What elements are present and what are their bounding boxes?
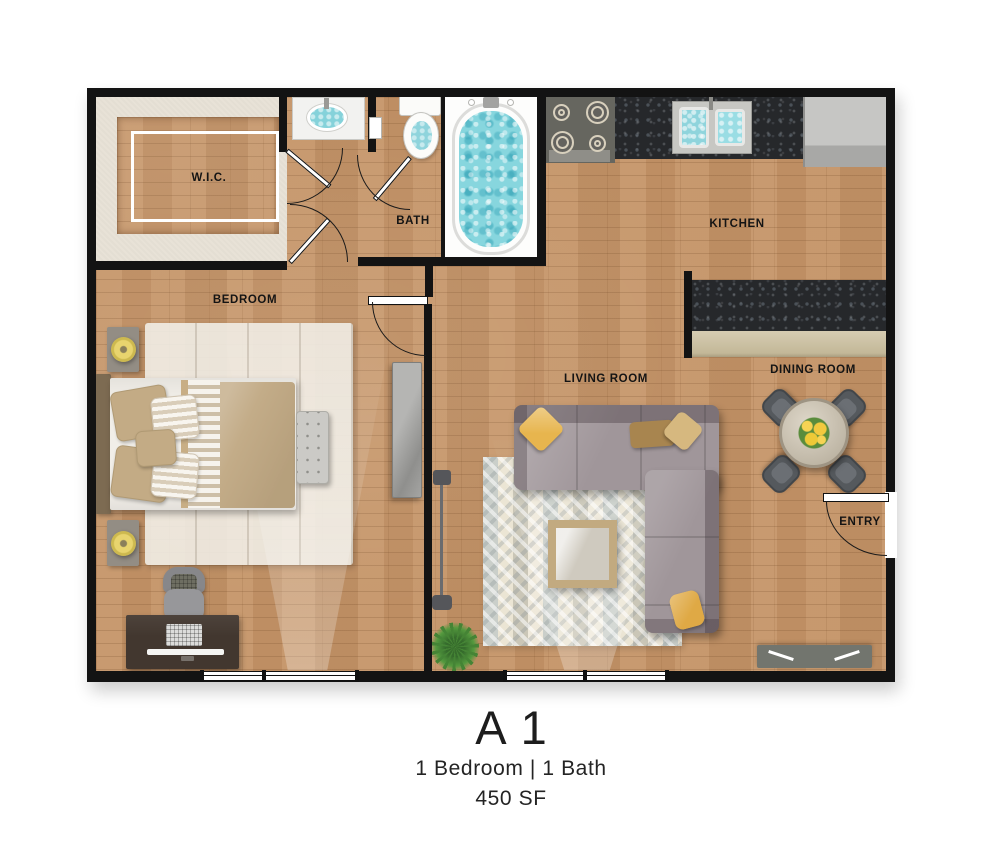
wall-bedroom-living (424, 304, 432, 671)
wall-wic-south (96, 261, 287, 270)
wall-left (87, 88, 96, 682)
bed-blanket (220, 382, 295, 508)
wall-wic-east (279, 97, 287, 152)
window-frame (583, 670, 587, 682)
plan-subtitle: 1 Bedroom | 1 Bath (415, 757, 606, 781)
bed-headboard (95, 374, 111, 514)
plant-icon (431, 622, 479, 672)
stove-burner-icon (553, 104, 570, 121)
room-label-dining-room: DINING ROOM (770, 364, 856, 376)
vanity-faucet-icon (324, 98, 329, 109)
room-label-entry: ENTRY (839, 516, 881, 528)
table-lamp-icon (111, 531, 136, 556)
plan-title: A1 (461, 700, 561, 755)
wall-top (87, 88, 895, 97)
room-label-living-room: LIVING ROOM (564, 373, 648, 385)
stove-burner-icon (551, 131, 574, 154)
plan-area: 450 SF (475, 787, 546, 811)
toilet-water (411, 121, 432, 150)
bed-bench (296, 411, 329, 484)
bedroom-window (202, 671, 358, 681)
toilet-paper-holder-icon (369, 117, 382, 139)
floor-lamp-pole (440, 485, 443, 597)
sink-bowl-left (679, 107, 709, 148)
room-label-kitchen: KITCHEN (709, 218, 764, 230)
wall-bath-kitchen (539, 97, 546, 264)
sink-bowl-right (715, 109, 745, 146)
wall-door-stub (425, 259, 433, 297)
tub-handle-icon (507, 99, 514, 106)
window-frame (355, 670, 359, 682)
window-frame (503, 670, 507, 682)
tub-faucet-icon (483, 97, 499, 108)
tv-console (757, 645, 872, 668)
breakfast-bar-front (692, 331, 886, 357)
room-label-bath: BATH (396, 215, 430, 227)
wall-bar-stub (684, 271, 692, 358)
window-frame (262, 670, 266, 682)
window-frame (665, 670, 669, 682)
sink-faucet-icon (709, 97, 713, 110)
flower-centerpiece-icon (797, 416, 831, 450)
keyboard-icon (166, 624, 202, 646)
bed-pillow (135, 429, 177, 468)
room-label-wic: W.I.C. (192, 172, 227, 184)
monitor-icon (147, 649, 224, 655)
floor-lamp-base (432, 595, 452, 610)
floor-lamp-icon (433, 470, 451, 485)
wall-bath-south (358, 257, 546, 266)
bathtub-water (459, 111, 523, 247)
coffee-table (548, 520, 617, 588)
tub-handle-icon (468, 99, 475, 106)
room-label-bedroom: BEDROOM (213, 294, 277, 306)
dresser (392, 362, 422, 498)
breakfast-bar (692, 280, 886, 331)
stove-burner-icon (586, 101, 609, 124)
window-frame (200, 670, 204, 682)
floor-plan-page: W.I.C. BATH KITCHEN BEDROOM LIVING ROOM … (0, 0, 982, 844)
monitor-stand-icon (181, 656, 194, 661)
refrigerator (803, 95, 886, 167)
table-lamp-icon (111, 337, 136, 362)
wall-right (886, 88, 895, 682)
stove-burner-icon (589, 135, 606, 152)
